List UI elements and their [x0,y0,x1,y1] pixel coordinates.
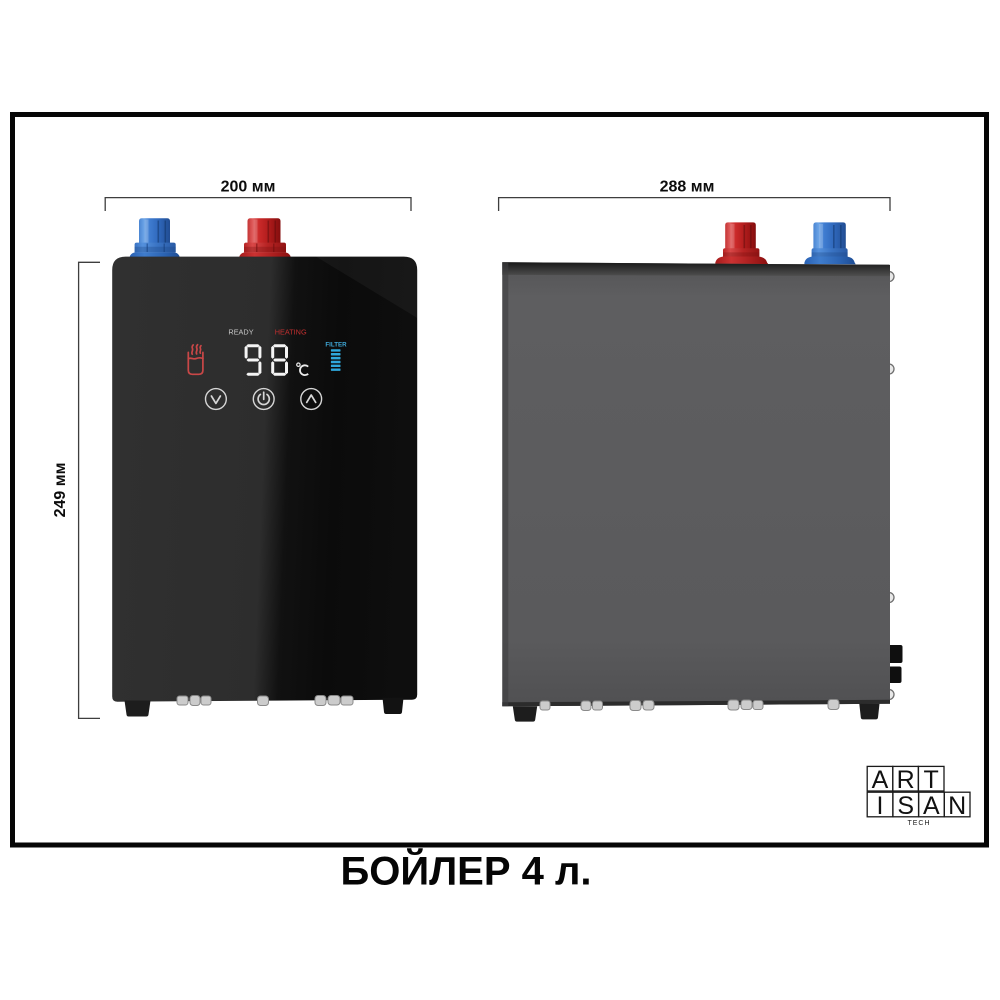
svg-text:249 мм: 249 мм [52,463,69,518]
svg-text:A: A [923,792,940,820]
svg-text:FILTER: FILTER [325,341,347,348]
svg-text:200 мм: 200 мм [221,179,276,196]
svg-text:N: N [948,792,966,820]
svg-text:TECH: TECH [907,820,930,827]
svg-text:БОЙЛЕР 4 л.: БОЙЛЕР 4 л. [340,848,591,894]
svg-text:S: S [897,792,914,820]
svg-text:T: T [924,766,939,794]
svg-text:R: R [897,766,915,794]
svg-text:I: I [877,792,884,820]
svg-text:A: A [872,766,889,794]
svg-text:READY: READY [228,328,253,337]
svg-text:288 мм: 288 мм [660,179,715,196]
svg-text:HEATING: HEATING [275,328,307,337]
